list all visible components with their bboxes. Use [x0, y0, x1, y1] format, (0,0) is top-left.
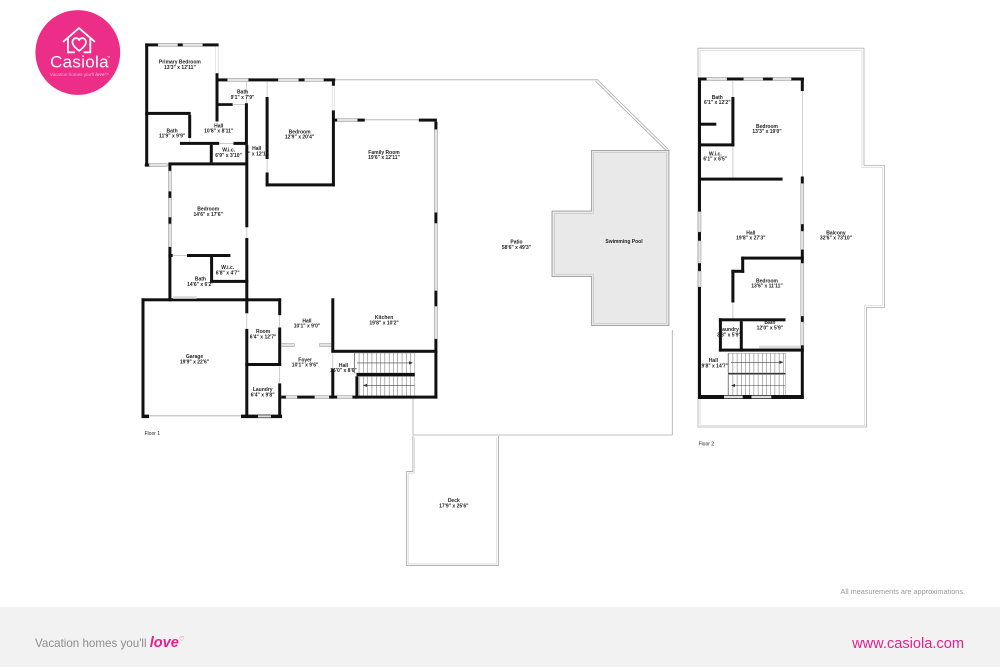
svg-text:Casiola: Casiola — [50, 53, 109, 72]
svg-text:Family Room19'6" x 12'11": Family Room19'6" x 12'11" — [368, 150, 400, 161]
svg-text:Primary Bedroom13'3" x 12'11": Primary Bedroom13'3" x 12'11" — [159, 60, 202, 71]
svg-text:Vacation homes you'll love™: Vacation homes you'll love™ — [50, 72, 109, 77]
svg-text:™: ™ — [107, 56, 111, 60]
svg-text:Bedroom14'6" x 17'6": Bedroom14'6" x 17'6" — [194, 207, 224, 218]
svg-text:www.casiola.com: www.casiola.com — [851, 636, 964, 652]
svg-text:Swimming Pool: Swimming Pool — [605, 239, 643, 245]
svg-text:Floor 2: Floor 2 — [699, 441, 715, 447]
svg-text:Floor 1: Floor 1 — [145, 431, 161, 437]
svg-text:Laundry6'4" x 9'8": Laundry6'4" x 9'8" — [251, 387, 275, 398]
svg-text:All measurements are approxima: All measurements are approximations. — [840, 587, 965, 596]
svg-text:Bedroom12'9" x 20'4": Bedroom12'9" x 20'4" — [285, 129, 315, 140]
svg-text:Vacation homes you'll love♡: Vacation homes you'll love♡ — [35, 635, 185, 651]
svg-text:Laundry3'3" x 5'9": Laundry3'3" x 5'9" — [717, 327, 741, 338]
svg-text:Bedroom13'3" x 19'0": Bedroom13'3" x 19'0" — [752, 124, 782, 135]
